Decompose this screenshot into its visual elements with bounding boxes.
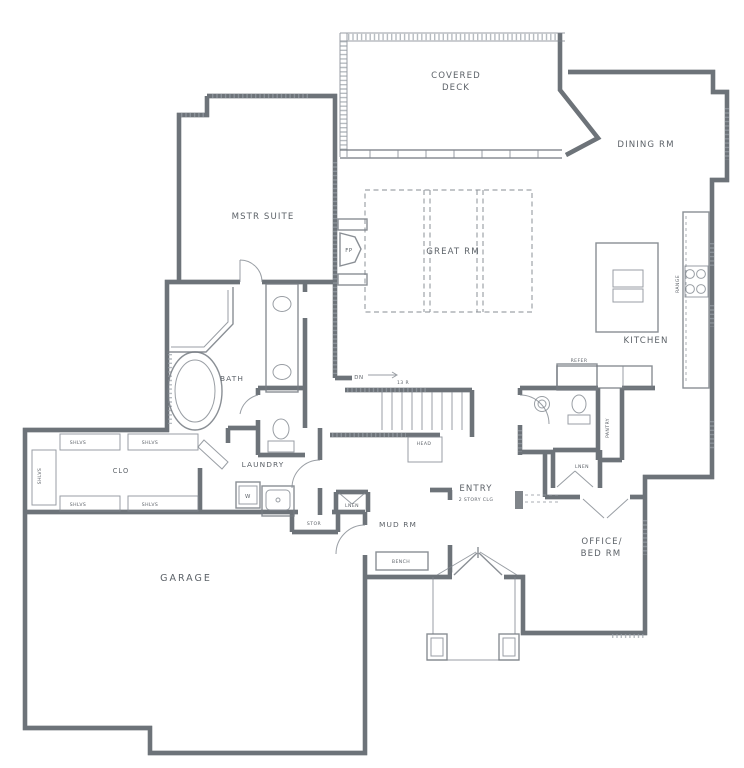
fireplace-cabinet-bottom [338, 274, 367, 285]
powder-toilet-tank [568, 415, 590, 424]
label-mstr-suite: MSTR SUITE [232, 212, 295, 222]
mud-linen-bifold-door [339, 493, 365, 504]
porch [427, 552, 519, 660]
stairs [368, 372, 462, 462]
powder-toilet-bowl [572, 395, 586, 413]
shower [167, 287, 233, 352]
linen-bifold-door [557, 471, 593, 487]
powder-door [520, 395, 549, 424]
entry-post [515, 491, 523, 509]
label-linen-office: LNEN [575, 464, 589, 470]
powder-room-fixtures [535, 395, 591, 424]
tub [168, 352, 222, 430]
label-office-2: BED RM [581, 549, 622, 559]
fireplace-cabinet-top [338, 219, 367, 230]
vanity-sink-1 [273, 297, 291, 312]
burner [697, 270, 706, 279]
floor-plan-sheet: COVERED DECK DINING RM MSTR SUITE GREAT … [0, 0, 744, 768]
label-shelves-4: SHLVS [70, 502, 86, 508]
label-mud-rm: MUD RM [379, 520, 417, 529]
label-pantry: PANTRY [605, 418, 611, 438]
label-garage: GARAGE [160, 573, 212, 584]
powder-sink [535, 397, 550, 412]
label-office-1: OFFICE/ [581, 537, 622, 547]
closet-pocket-door [198, 440, 228, 469]
vanity-sink-2 [273, 365, 291, 380]
label-refrigerator: REFER [571, 358, 588, 364]
label-bath: BATH [220, 374, 244, 383]
label-dining-rm: DINING RM [617, 140, 674, 150]
under-stair-head-closet [408, 437, 442, 462]
kitchen-south-counter [557, 366, 652, 388]
stairs-down-arrow [368, 372, 397, 378]
label-washer: W [245, 494, 251, 500]
label-linen-mud: LNEN [345, 503, 359, 509]
island-sink-bowl-1 [613, 270, 643, 287]
label-range: RANGE [675, 275, 681, 293]
label-head: HEAD [417, 441, 432, 447]
label-laundry: LAUNDRY [242, 460, 285, 469]
label-storage: STOR [307, 521, 322, 527]
label-kitchen: KITCHEN [624, 336, 669, 346]
labels: COVERED DECK DINING RM MSTR SUITE GREAT … [37, 71, 681, 584]
toilet-tank [268, 441, 294, 452]
label-entry: ENTRY [459, 484, 492, 494]
toilet-room-door [240, 395, 258, 414]
label-shelves-1: SHLVS [70, 440, 86, 446]
garage-door [336, 525, 365, 554]
label-shelves-5: SHLVS [142, 502, 158, 508]
bath-door [240, 260, 262, 282]
burner [697, 285, 706, 294]
toilet-bowl [273, 419, 289, 439]
label-shelves-2: SHLVS [142, 440, 158, 446]
label-bench: BENCH [392, 559, 410, 565]
label-stairs-risers: 13 R [397, 380, 410, 386]
island-sink-bowl-2 [613, 289, 643, 302]
label-stairs-dn: DN [354, 375, 363, 381]
covered-deck-structure [340, 33, 565, 158]
office-double-doors [583, 499, 628, 518]
label-covered-deck-1: COVERED [431, 71, 481, 81]
vanity [266, 284, 298, 392]
burner [686, 285, 695, 294]
label-clo: CLO [113, 467, 130, 475]
label-great-rm: GREAT RM [426, 247, 479, 257]
kitchen-east-counter [683, 212, 709, 388]
laundry-door [292, 460, 320, 488]
burner [686, 270, 695, 279]
label-covered-deck-2: DECK [442, 83, 470, 93]
label-fireplace: FP [345, 248, 353, 254]
floor-plan-drawing: COVERED DECK DINING RM MSTR SUITE GREAT … [0, 0, 744, 768]
label-entry-ceiling: 2 STORY CLG [459, 497, 494, 503]
label-shelves-3: SHLVS [37, 468, 43, 484]
